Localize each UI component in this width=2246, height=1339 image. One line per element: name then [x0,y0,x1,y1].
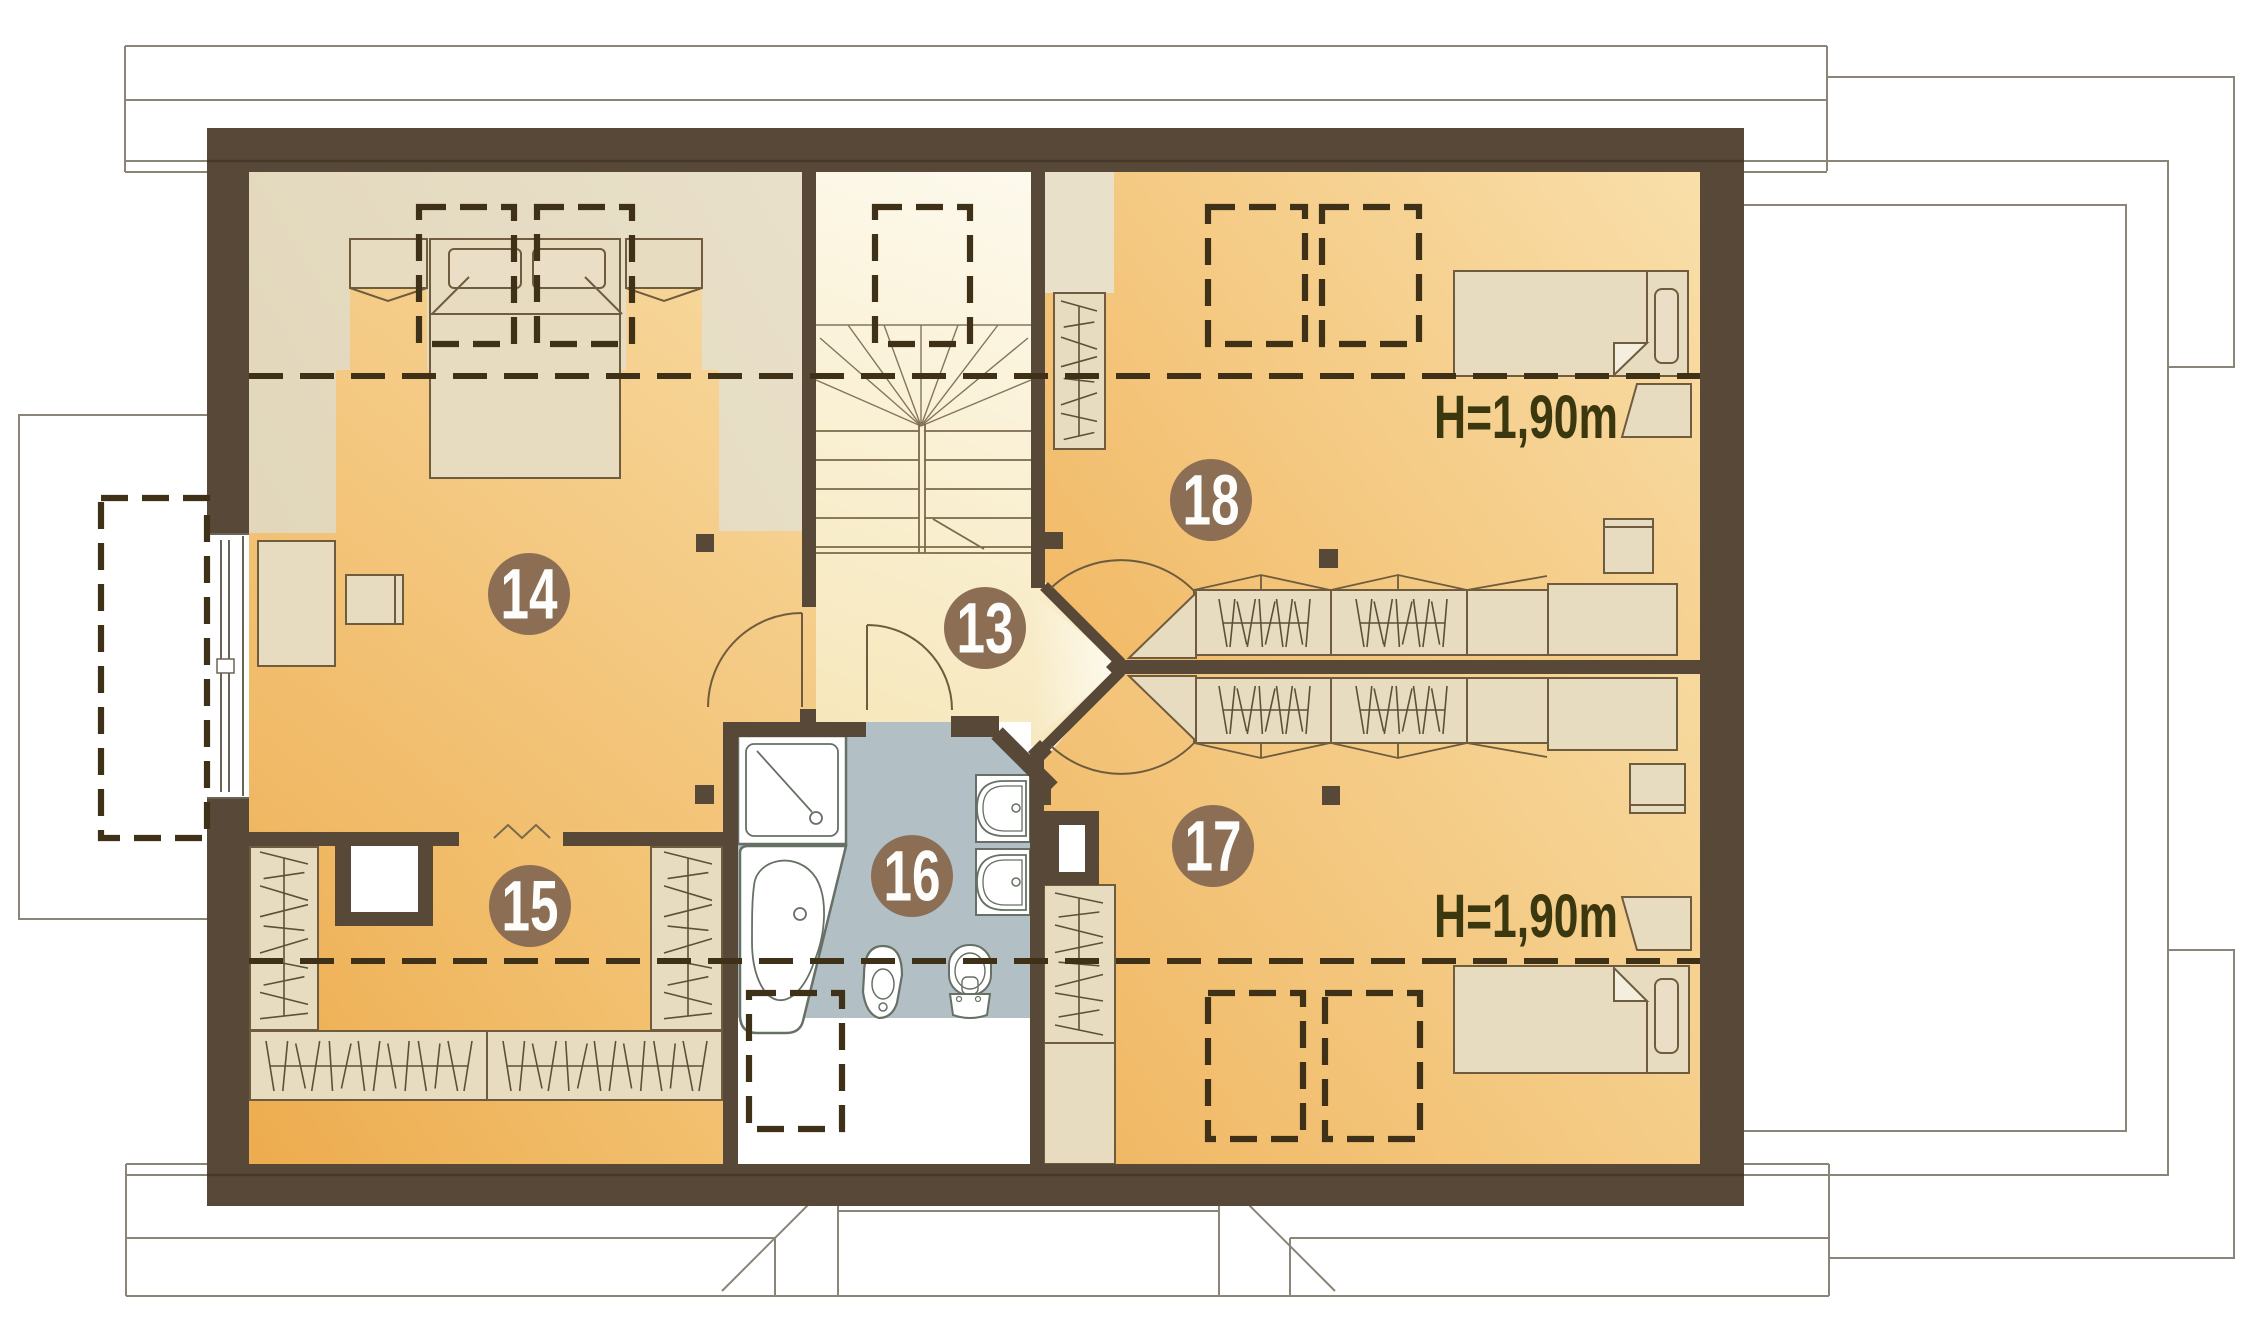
svg-text:18: 18 [1183,462,1240,541]
svg-text:16: 16 [884,838,941,917]
svg-text:H=1,90m: H=1,90m [1434,383,1618,451]
svg-text:H=1,90m: H=1,90m [1434,882,1618,950]
svg-text:13: 13 [957,590,1014,669]
svg-text:17: 17 [1185,808,1242,887]
svg-text:15: 15 [502,868,559,947]
svg-text:14: 14 [501,556,558,635]
